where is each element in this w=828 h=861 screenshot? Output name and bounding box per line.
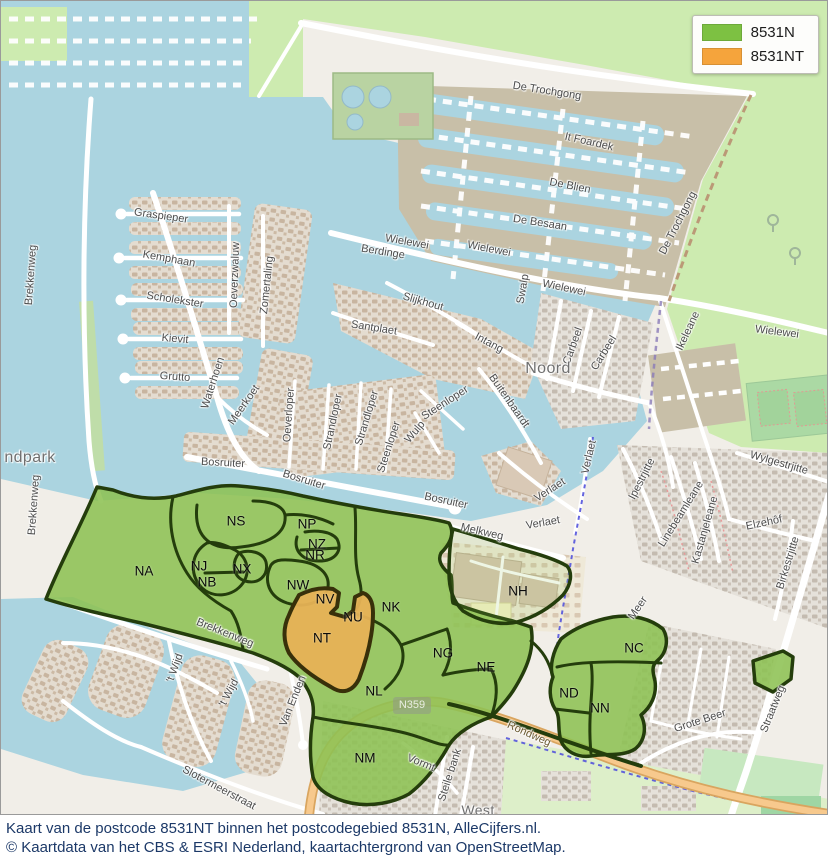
legend-row-8531n: 8531N xyxy=(702,24,804,41)
map-caption: Kaart van de postcode 8531NT binnen het … xyxy=(0,815,828,861)
legend-row-8531nt: 8531NT xyxy=(702,48,804,65)
map-canvas[interactable]: N359 De TrochgongIt FoardekDe BlienDe Be… xyxy=(0,0,828,815)
page: N359 De TrochgongIt FoardekDe BlienDe Be… xyxy=(0,0,828,861)
legend-swatch-8531n xyxy=(702,24,742,41)
legend-label-8531n: 8531N xyxy=(751,24,795,41)
basemap-svg xyxy=(1,1,828,815)
caption-line1: Kaart van de postcode 8531NT binnen het … xyxy=(6,819,828,838)
legend: 8531N 8531NT xyxy=(692,15,819,74)
legend-swatch-8531nt xyxy=(702,48,742,65)
legend-label-8531nt: 8531NT xyxy=(751,48,804,65)
caption-line2: © Kaartdata van het CBS & ESRI Nederland… xyxy=(6,838,828,857)
